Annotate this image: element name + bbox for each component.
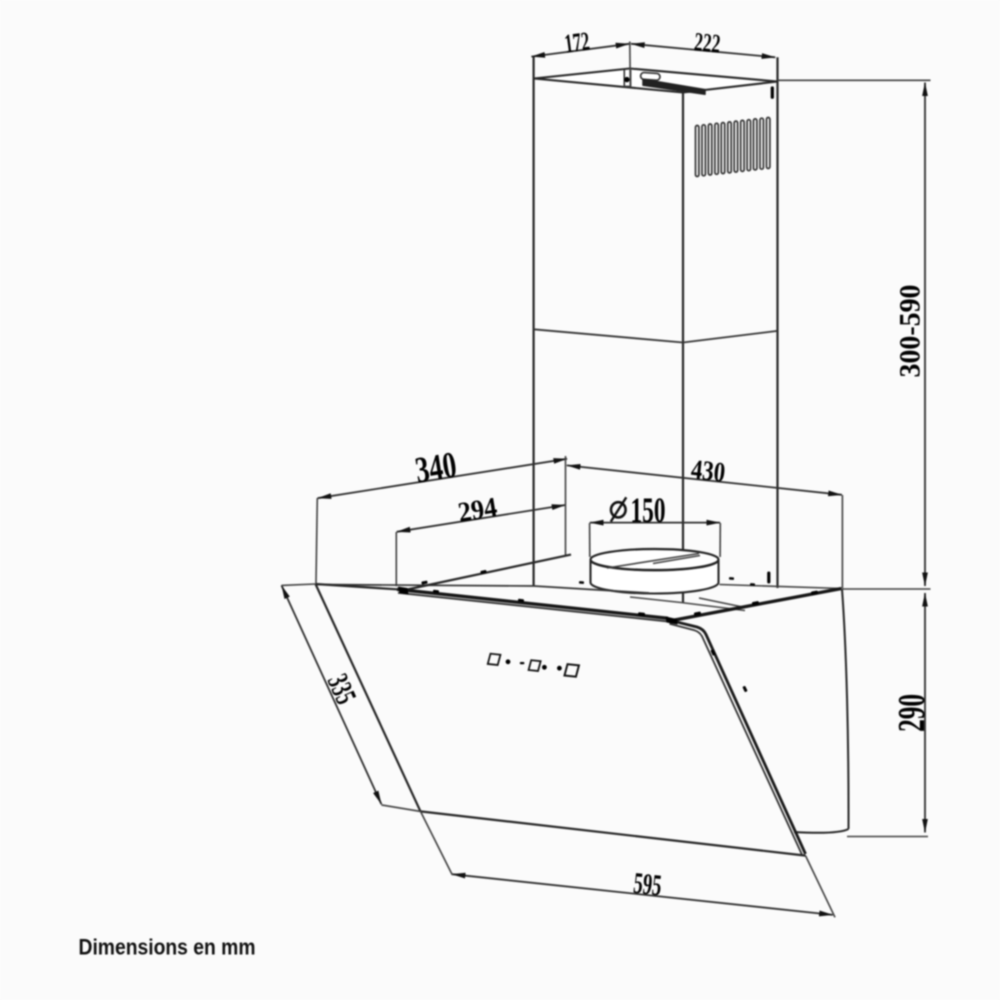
svg-text:430: 430 <box>690 454 727 488</box>
svg-text:172: 172 <box>563 26 592 59</box>
svg-text:340: 340 <box>412 445 459 492</box>
svg-text:300-590: 300-590 <box>894 285 927 378</box>
svg-text:595: 595 <box>632 867 663 903</box>
svg-text:290: 290 <box>891 694 933 732</box>
svg-text:222: 222 <box>693 26 722 58</box>
svg-text:150: 150 <box>631 490 666 530</box>
svg-text:Dimensions en mm: Dimensions en mm <box>79 935 256 960</box>
svg-text:294: 294 <box>456 492 499 529</box>
